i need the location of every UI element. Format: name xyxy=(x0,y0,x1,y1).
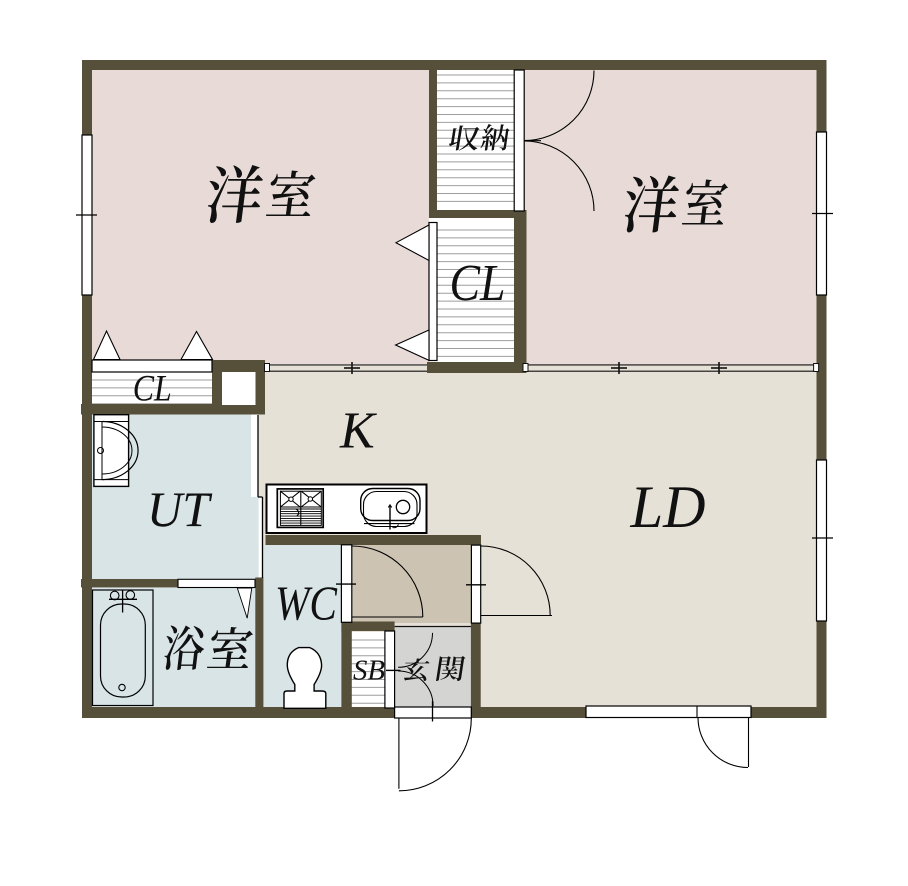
svg-text:K: K xyxy=(339,403,377,460)
svg-text:CL: CL xyxy=(450,255,506,312)
svg-text:WC: WC xyxy=(275,576,338,631)
svg-text:LD: LD xyxy=(630,474,706,540)
svg-text:UT: UT xyxy=(147,481,213,537)
svg-text:CL: CL xyxy=(133,369,172,410)
svg-text:SB: SB xyxy=(353,655,385,687)
